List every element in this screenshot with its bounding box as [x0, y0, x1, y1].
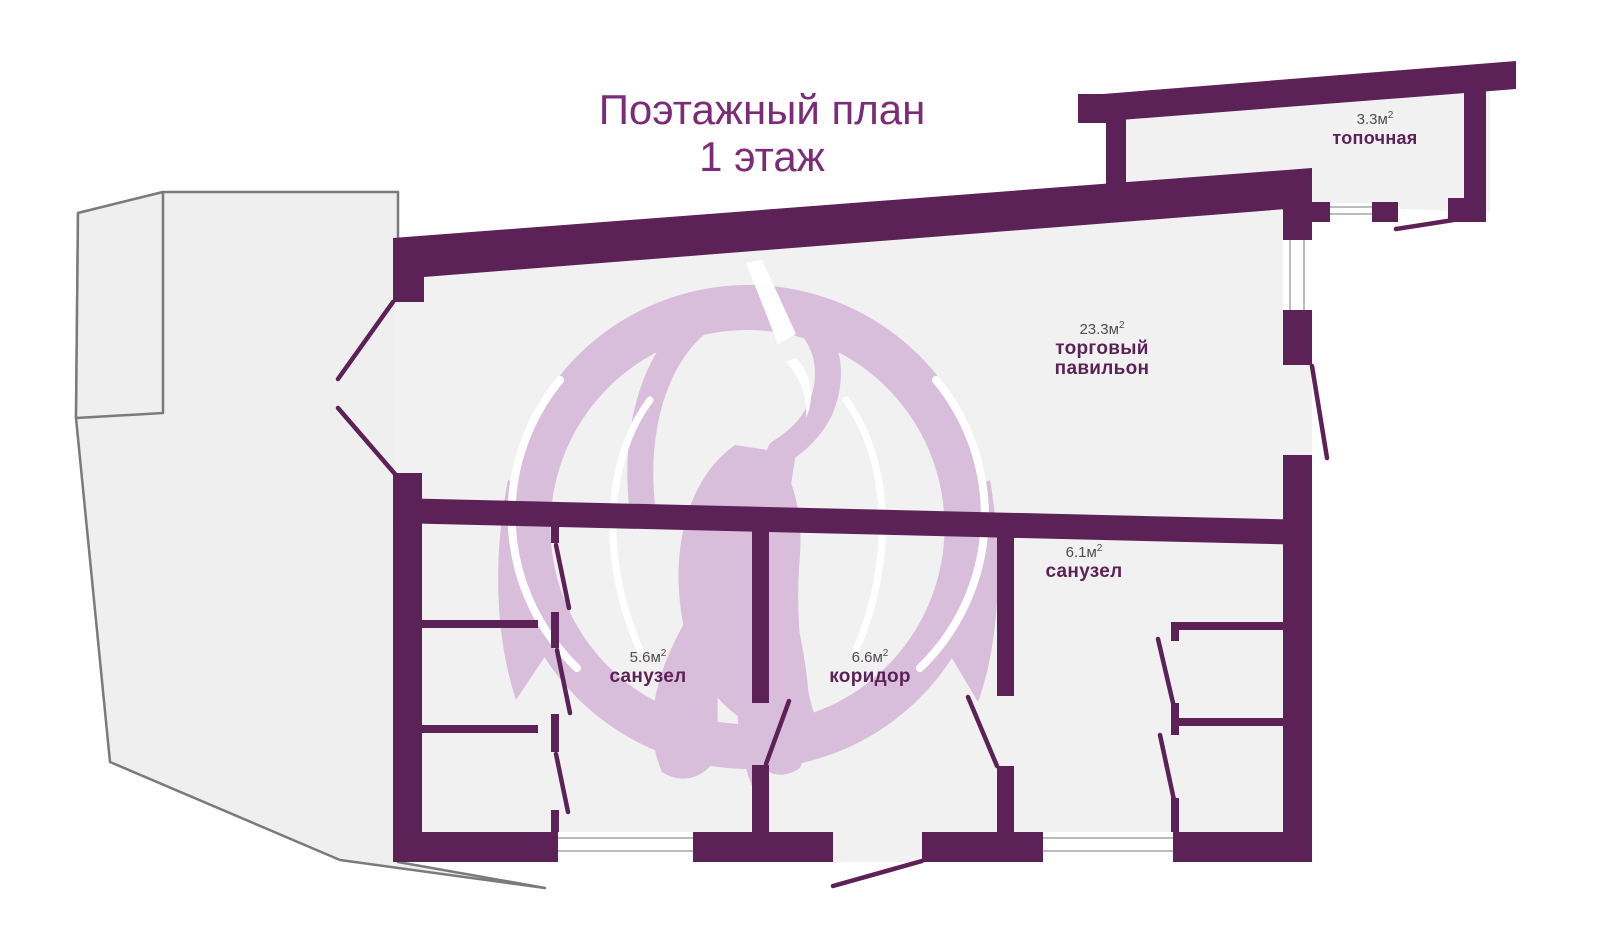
room-area: 6.1м2: [1045, 543, 1122, 562]
corridor-exterior-door-leaf: [833, 861, 922, 886]
left-cabin-tick3: [551, 714, 559, 752]
annex-left-wall: [1106, 118, 1126, 198]
right-cabin-stub2: [1173, 718, 1283, 726]
bottom-wall-seg1: [393, 832, 558, 862]
right-cabin-tick2: [1171, 703, 1179, 735]
right-wall-door-leaf: [1312, 366, 1327, 458]
annex-window: [1330, 203, 1372, 221]
left-cabin-tick4: [551, 810, 559, 833]
room-label-topochnaya: 3.3м2 топочная: [1332, 110, 1417, 148]
room-area: 6.6м2: [829, 648, 911, 667]
bottom-window-left: [558, 832, 693, 862]
plot-small-parcel: [76, 192, 163, 418]
right-cabin-stub1: [1173, 622, 1283, 630]
room-area: 23.3м2: [1046, 320, 1158, 339]
bottom-wall-seg3: [922, 832, 1043, 862]
partition-right-upper: [997, 521, 1014, 696]
room-name: коридор: [829, 667, 911, 688]
left-cabin-tick2: [551, 612, 559, 648]
bottom-wall-seg4: [1173, 832, 1312, 862]
left-cabin-stub2: [422, 725, 538, 733]
page-title: Поэтажный план 1 этаж: [599, 86, 926, 180]
room-label-sanuzel-right: 6.1м2 санузел: [1045, 543, 1122, 582]
right-wall-lower: [1283, 455, 1312, 835]
page-title-line1: Поэтажный план: [599, 86, 926, 133]
room-label-sanuzel-left: 5.6м2 санузел: [609, 648, 686, 687]
annex-top-wall-left-cap: [1078, 94, 1108, 123]
page-title-line2: 1 этаж: [599, 133, 926, 180]
room-name: санузел: [609, 667, 686, 688]
bottom-wall-seg2: [693, 832, 833, 862]
room-label-koridor: 6.6м2 коридор: [829, 648, 911, 687]
room-label-pavilion: 23.3м2 торговый павильон: [1046, 320, 1158, 380]
left-cabin-stub1: [422, 620, 538, 628]
right-cabin-tick1: [1171, 622, 1179, 641]
room-name: торговый павильон: [1046, 339, 1158, 381]
right-wall-mid: [1283, 310, 1312, 365]
bottom-window-right: [1043, 832, 1173, 862]
room-name: санузел: [1045, 562, 1122, 583]
floor-plan-page: Поэтажный план 1 этаж 3.3м2 топочная 23.…: [0, 0, 1600, 931]
partition-left-lower: [752, 765, 769, 833]
room-name: топочная: [1332, 129, 1417, 149]
room-area: 3.3м2: [1332, 110, 1417, 129]
left-cabin-tick1: [551, 520, 559, 543]
right-cabin-tick3: [1171, 798, 1179, 833]
room-area: 5.6м2: [609, 648, 686, 667]
partition-left-upper: [752, 519, 769, 703]
main-left-wall-lower: [393, 473, 422, 862]
partition-right-lower: [997, 766, 1014, 833]
annex-right-wall: [1464, 84, 1486, 206]
right-wall-window: [1283, 240, 1312, 310]
annex-door-leaf: [1396, 216, 1479, 229]
annex-window-stub-right: [1372, 202, 1398, 222]
annex-window-stub-left: [1305, 202, 1330, 222]
